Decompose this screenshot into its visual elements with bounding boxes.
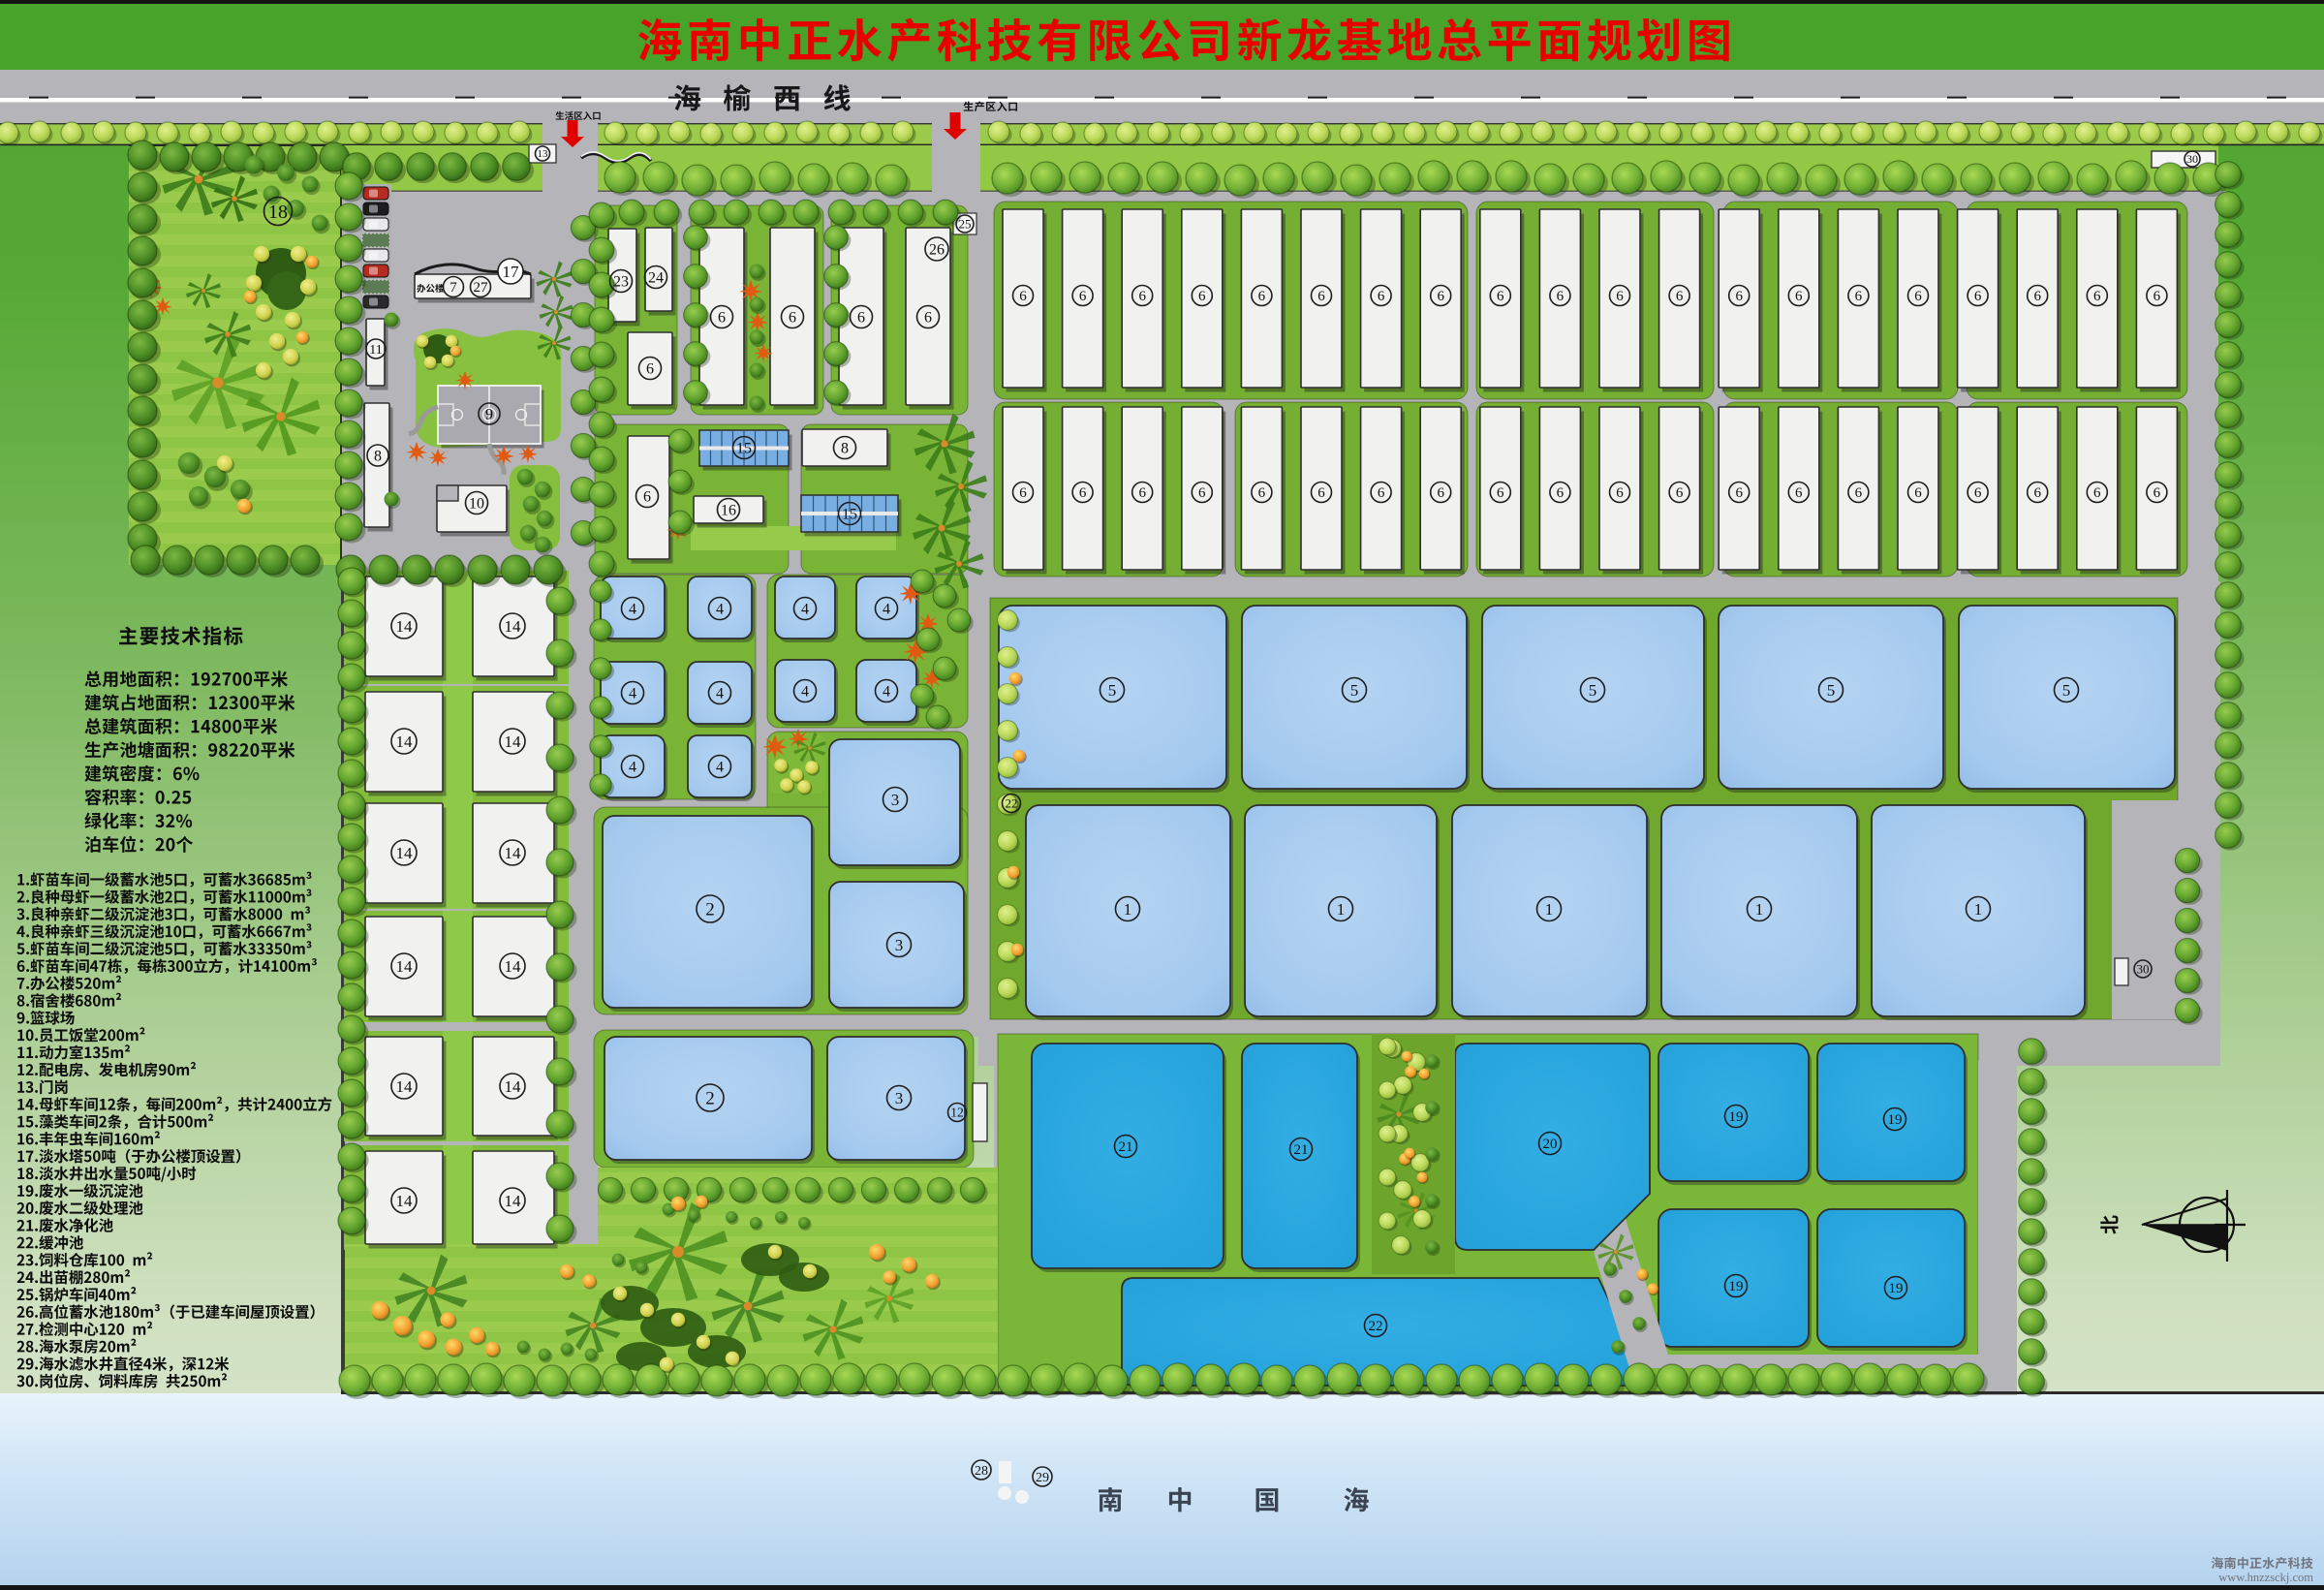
svg-text:5: 5 (1108, 681, 1117, 700)
svg-text:6: 6 (2154, 289, 2161, 304)
svg-text:6: 6 (1616, 289, 1624, 304)
svg-text:6: 6 (1914, 485, 1922, 501)
svg-text:19: 19 (1888, 1112, 1903, 1128)
svg-text:6: 6 (1795, 485, 1803, 501)
svg-text:5: 5 (1350, 681, 1359, 700)
svg-text:6: 6 (1378, 289, 1385, 304)
svg-text:6: 6 (789, 309, 796, 326)
svg-text:10: 10 (469, 495, 484, 512)
svg-text:14: 14 (396, 1077, 414, 1096)
svg-text:12: 12 (950, 1106, 964, 1120)
svg-text:19: 19 (1889, 1281, 1904, 1296)
svg-text:6: 6 (1378, 485, 1385, 501)
svg-text:7: 7 (449, 280, 457, 296)
svg-text:4: 4 (801, 683, 809, 700)
svg-text:14: 14 (505, 1192, 522, 1210)
svg-text:6: 6 (1914, 289, 1922, 304)
svg-text:6: 6 (1317, 485, 1325, 501)
svg-text:6: 6 (1138, 289, 1146, 304)
svg-text:27: 27 (474, 280, 489, 296)
svg-text:6: 6 (2033, 289, 2041, 304)
svg-text:6: 6 (1258, 485, 1266, 501)
svg-text:6: 6 (1019, 289, 1027, 304)
svg-text:www.hnzzsckj.com: www.hnzzsckj.com (2218, 1571, 2313, 1584)
svg-text:6: 6 (718, 309, 726, 326)
svg-text:4: 4 (716, 685, 724, 701)
svg-text:4: 4 (716, 601, 724, 617)
svg-text:6: 6 (1855, 485, 1863, 501)
svg-text:6: 6 (1198, 485, 1206, 501)
svg-text:26: 26 (929, 241, 945, 258)
svg-text:14: 14 (505, 733, 522, 751)
svg-text:8: 8 (841, 440, 849, 456)
svg-text:4: 4 (629, 601, 636, 617)
svg-text:6: 6 (1497, 485, 1504, 501)
svg-text:6: 6 (1317, 289, 1325, 304)
svg-text:6: 6 (1557, 289, 1565, 304)
svg-text:4: 4 (801, 601, 809, 617)
svg-text:6: 6 (643, 488, 651, 505)
svg-text:18: 18 (268, 202, 288, 223)
svg-text:6: 6 (1974, 485, 1982, 501)
svg-text:28: 28 (975, 1464, 988, 1479)
svg-text:14: 14 (396, 1192, 414, 1210)
svg-text:6: 6 (1079, 289, 1087, 304)
svg-text:11: 11 (369, 343, 382, 358)
svg-text:3: 3 (895, 1089, 904, 1107)
svg-text:21: 21 (1119, 1139, 1133, 1155)
svg-text:14: 14 (505, 844, 522, 862)
svg-text:4: 4 (629, 759, 636, 775)
svg-text:30: 30 (2186, 152, 2198, 166)
svg-text:1: 1 (1337, 900, 1346, 919)
svg-text:6: 6 (1974, 289, 1982, 304)
svg-text:2: 2 (705, 1088, 715, 1108)
svg-text:19: 19 (1729, 1279, 1744, 1294)
svg-text:24: 24 (648, 269, 664, 286)
svg-text:6: 6 (2154, 485, 2161, 501)
svg-text:6: 6 (1497, 289, 1504, 304)
svg-text:16: 16 (721, 502, 736, 518)
svg-text:6: 6 (1138, 485, 1146, 501)
svg-text:14: 14 (505, 957, 522, 976)
svg-text:6: 6 (646, 360, 654, 377)
svg-text:6: 6 (1019, 485, 1027, 501)
svg-text:6: 6 (2093, 289, 2101, 304)
svg-text:9: 9 (485, 406, 493, 422)
svg-text:5: 5 (2062, 681, 2071, 700)
svg-text:6: 6 (1676, 485, 1684, 501)
svg-text:6: 6 (1795, 289, 1803, 304)
svg-text:6: 6 (1676, 289, 1684, 304)
svg-text:15: 15 (736, 440, 752, 456)
svg-text:6: 6 (1437, 485, 1444, 501)
svg-text:22: 22 (1006, 795, 1018, 810)
svg-text:4: 4 (883, 683, 890, 700)
svg-text:14: 14 (505, 1077, 522, 1096)
svg-text:6: 6 (1735, 485, 1743, 501)
svg-text:15: 15 (842, 506, 857, 522)
svg-text:1: 1 (1755, 900, 1764, 919)
svg-text:6: 6 (857, 309, 865, 326)
svg-text:14: 14 (396, 957, 414, 976)
svg-text:6: 6 (924, 309, 932, 326)
svg-text:22: 22 (1369, 1319, 1383, 1334)
svg-text:6: 6 (2093, 485, 2101, 501)
svg-text:19: 19 (1729, 1109, 1744, 1125)
svg-text:14: 14 (396, 733, 414, 751)
svg-text:23: 23 (613, 273, 629, 290)
svg-text:14: 14 (396, 617, 414, 636)
svg-text:29: 29 (1036, 1471, 1049, 1485)
svg-text:3: 3 (891, 791, 900, 809)
svg-text:8: 8 (374, 448, 382, 464)
svg-text:6: 6 (1258, 289, 1266, 304)
svg-text:17: 17 (503, 263, 520, 281)
svg-text:4: 4 (716, 759, 724, 775)
svg-text:1: 1 (1124, 900, 1132, 919)
svg-text:6: 6 (1735, 289, 1743, 304)
svg-text:2: 2 (705, 899, 715, 920)
svg-text:6: 6 (2033, 485, 2041, 501)
svg-text:13: 13 (538, 148, 549, 160)
svg-text:1: 1 (1974, 900, 1983, 919)
svg-text:14: 14 (396, 844, 414, 862)
svg-text:6: 6 (1437, 289, 1444, 304)
svg-text:5: 5 (1827, 681, 1836, 700)
svg-text:4: 4 (883, 601, 890, 617)
svg-text:21: 21 (1294, 1142, 1309, 1158)
svg-text:30: 30 (2137, 961, 2150, 976)
svg-text:1: 1 (1545, 900, 1554, 919)
svg-text:6: 6 (1855, 289, 1863, 304)
svg-text:4: 4 (629, 685, 636, 701)
svg-text:14: 14 (505, 617, 522, 636)
svg-text:5: 5 (1589, 681, 1597, 700)
svg-text:6: 6 (1557, 485, 1565, 501)
svg-text:20: 20 (1543, 1137, 1558, 1152)
svg-text:6: 6 (1616, 485, 1624, 501)
svg-text:3: 3 (895, 936, 904, 954)
svg-text:6: 6 (1079, 485, 1087, 501)
svg-text:6: 6 (1198, 289, 1206, 304)
